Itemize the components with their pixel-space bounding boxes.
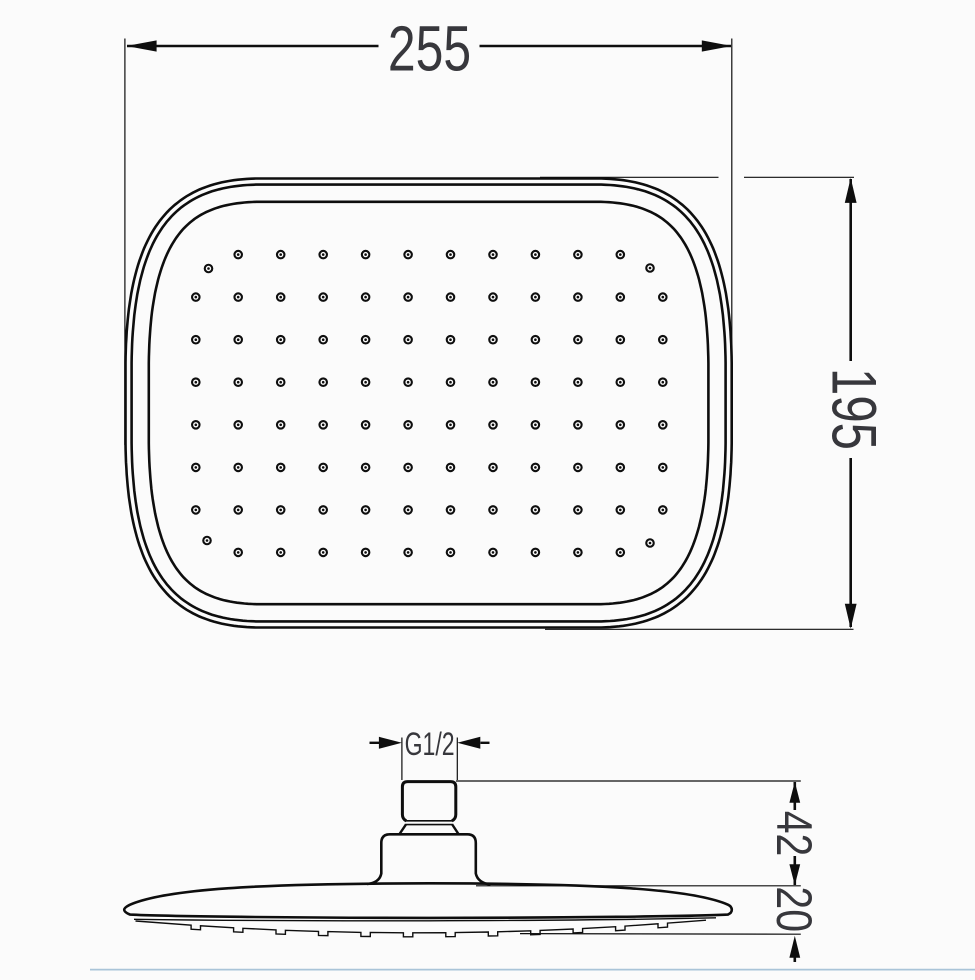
svg-text:20: 20 bbox=[766, 886, 822, 932]
svg-text:255: 255 bbox=[388, 13, 471, 84]
svg-text:195: 195 bbox=[819, 368, 889, 450]
svg-text:G1/2: G1/2 bbox=[405, 726, 455, 762]
svg-text:42: 42 bbox=[766, 811, 822, 857]
